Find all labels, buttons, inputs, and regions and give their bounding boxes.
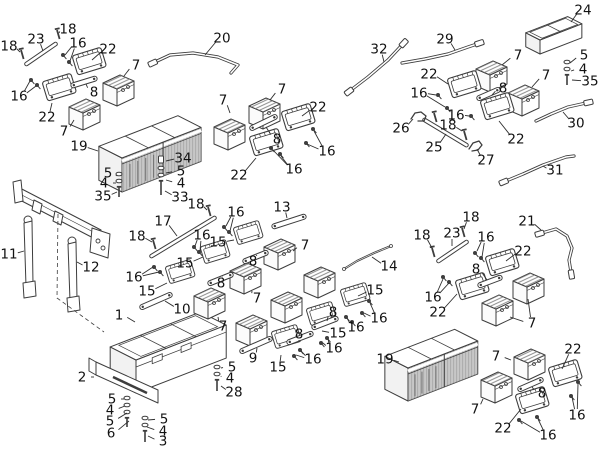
- callout-label: 8: [499, 81, 508, 97]
- callout-label: 1: [115, 308, 124, 324]
- callout-label: 16: [370, 311, 387, 327]
- callout-label: 16: [568, 408, 585, 424]
- callout-label: 16: [318, 144, 335, 160]
- callout-label: 8: [295, 327, 304, 343]
- callout-label: 18: [462, 210, 479, 226]
- callout-label: 24: [574, 3, 591, 19]
- callout-label: 7: [132, 58, 141, 74]
- callout-label: 13: [273, 200, 290, 216]
- callout-label: 26: [392, 121, 409, 137]
- callout-label: 11: [0, 247, 17, 263]
- callout-label: 10: [173, 302, 190, 318]
- callout-label: 7: [528, 316, 537, 332]
- callout-label: 7: [278, 82, 287, 98]
- callout-label: 27: [477, 153, 494, 169]
- callout-label: 35: [94, 189, 111, 205]
- callout-label: 15: [366, 283, 383, 299]
- callout-label: 9: [249, 351, 258, 367]
- callout-label: 15: [209, 235, 226, 251]
- callout-label: 35: [581, 74, 598, 90]
- callout-label: 19: [70, 139, 87, 155]
- callout-label: 22: [429, 305, 446, 321]
- callout-label: 14: [380, 259, 397, 275]
- callout-label: 7: [492, 349, 501, 365]
- callout-label: 16: [193, 228, 210, 244]
- callout-label: 18: [439, 118, 456, 134]
- callout-label: 16: [69, 36, 86, 52]
- callout-label: 15: [269, 360, 286, 376]
- callout-label: 12: [82, 260, 99, 276]
- callout-label: 3: [159, 434, 168, 449]
- callout-label: 31: [546, 163, 563, 179]
- callout-label: 16: [227, 205, 244, 221]
- callout-label: 8: [249, 254, 258, 270]
- callout-label: 7: [60, 124, 69, 140]
- callout-label: 18: [0, 39, 17, 55]
- callout-label: 23: [27, 32, 44, 48]
- callout-label: 22: [494, 421, 511, 437]
- callout-label: 6: [107, 426, 116, 442]
- callout-label: 18: [187, 197, 204, 213]
- callout-label: 8: [329, 305, 338, 321]
- callout-label: 21: [518, 214, 535, 230]
- callout-label: 29: [436, 32, 453, 48]
- callout-label: 32: [370, 42, 387, 58]
- callout-label: 7: [219, 319, 228, 335]
- callout-label: 22: [420, 67, 437, 83]
- callout-label: 16: [347, 320, 364, 336]
- callout-label: 15: [329, 326, 346, 342]
- callout-label: 8: [273, 132, 282, 148]
- callout-label: 2: [78, 370, 87, 386]
- callout-label: 33: [171, 190, 188, 206]
- callout-label: 15: [176, 256, 193, 272]
- callout-label: 16: [410, 86, 427, 102]
- callout-label: 16: [325, 341, 342, 357]
- callout-label: 16: [304, 352, 321, 368]
- callout-label: 20: [213, 31, 230, 47]
- callout-label: 22: [230, 168, 247, 184]
- callout-label: 22: [99, 42, 116, 58]
- callout-label: 16: [285, 162, 302, 178]
- callout-label: 22: [309, 100, 326, 116]
- callout-label: 7: [471, 402, 480, 418]
- callout-label: 22: [564, 342, 581, 358]
- callout-label: 7: [542, 68, 551, 84]
- parts-diagram-page: 1823181622781622719203229247722816162275…: [0, 0, 600, 449]
- callout-label: 22: [38, 110, 55, 126]
- callout-label: 7: [514, 48, 523, 64]
- callout-label: 28: [225, 385, 242, 401]
- callout-label: 7: [301, 238, 310, 254]
- callout-label: 23: [443, 226, 460, 242]
- callout-label: 8: [90, 85, 99, 101]
- callout-label: 8: [472, 262, 481, 278]
- callout-label: 7: [253, 291, 262, 307]
- callout-label: 15: [138, 284, 155, 300]
- callout-label: 16: [477, 230, 494, 246]
- callout-label: 18: [413, 228, 430, 244]
- callout-label: 16: [10, 89, 27, 105]
- callout-label: 18: [128, 229, 145, 245]
- exploded-parts-diagram: 1823181622781622719203229247722816162275…: [0, 0, 600, 449]
- callout-label: 8: [217, 276, 226, 292]
- callout-label: 16: [424, 290, 441, 306]
- callout-label: 19: [376, 352, 393, 368]
- callout-label: 22: [507, 132, 524, 148]
- callout-label: 30: [567, 116, 584, 132]
- callout-label: 22: [514, 244, 531, 260]
- callout-label: 7: [219, 93, 228, 109]
- callout-label: 17: [154, 214, 171, 230]
- callout-label: 16: [539, 428, 556, 444]
- callout-label: 25: [425, 140, 442, 156]
- cable-lug: [568, 270, 575, 280]
- callout-label: 8: [538, 386, 547, 402]
